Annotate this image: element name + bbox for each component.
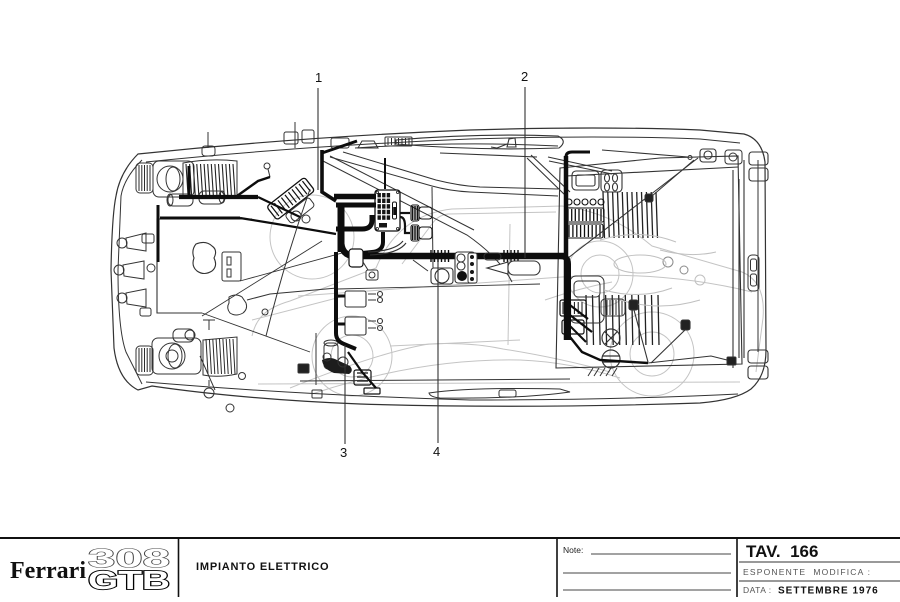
svg-text:1: 1: [315, 70, 322, 85]
svg-text:ESPONENTE MODIFICA :: ESPONENTE MODIFICA :: [743, 567, 871, 577]
svg-text:DATA :: DATA :: [743, 585, 772, 595]
svg-text:2: 2: [521, 69, 528, 84]
svg-text:SETTEMBRE 1976: SETTEMBRE 1976: [778, 586, 879, 597]
svg-text:GTB: GTB: [88, 565, 170, 595]
svg-text:3: 3: [340, 445, 347, 460]
svg-text:TAV. 166: TAV. 166: [746, 542, 818, 561]
svg-text:Ferrari: Ferrari: [10, 558, 86, 584]
svg-text:4: 4: [433, 444, 440, 459]
svg-text:Note:: Note:: [563, 545, 583, 555]
svg-text:IMPIANTO ELETTRICO: IMPIANTO ELETTRICO: [196, 561, 329, 573]
